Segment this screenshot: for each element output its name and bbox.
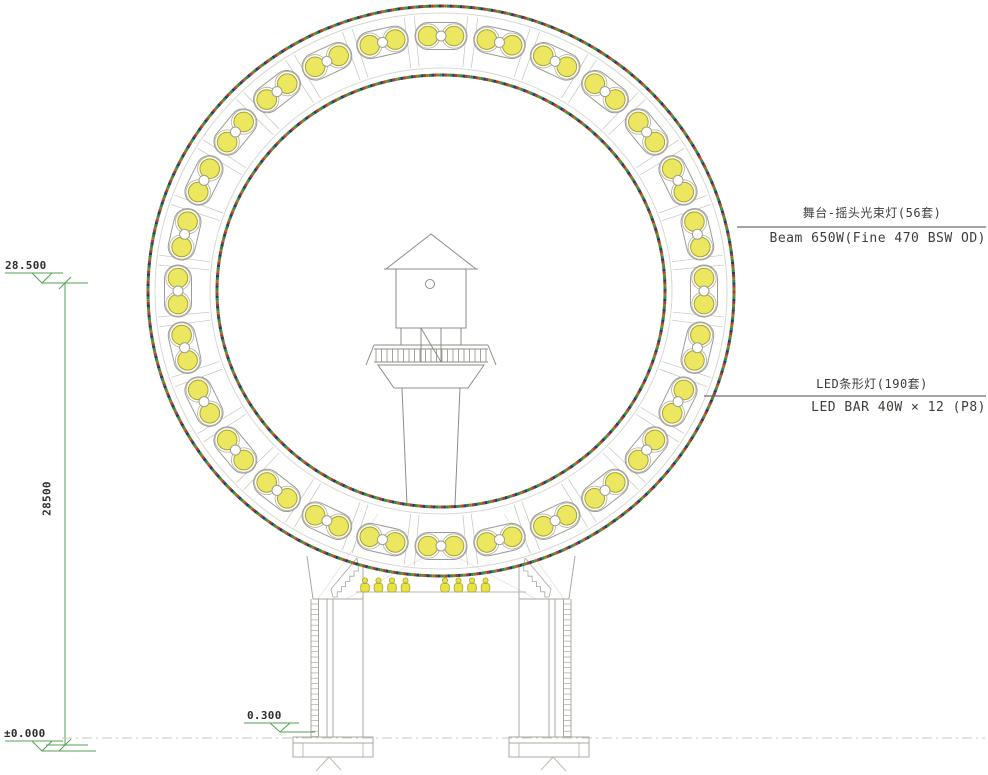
beam-light-label-en: Beam 650W(Fine 470 BSW OD) <box>758 231 986 246</box>
beam-light-capsule <box>620 421 674 478</box>
beam-light-capsule <box>248 65 306 118</box>
beam-light-capsule <box>165 265 192 317</box>
beam-light-capsule <box>354 521 411 559</box>
tower-cabin <box>396 269 466 328</box>
beam-light-capsule <box>471 521 528 559</box>
stage-mini-light <box>481 578 490 592</box>
overall-height-value: 28500 <box>41 476 54 522</box>
beam-light-capsule <box>576 464 634 517</box>
led-bar-label-en: LED BAR 40W × 12 (P8) <box>758 400 986 415</box>
beam-light-label-zh: 舞台-摇头光束灯(56套) <box>758 204 986 221</box>
beam-light-capsule <box>691 265 718 317</box>
beam-light-capsule <box>180 372 227 431</box>
level-mark-ground <box>5 741 96 751</box>
beam-light-capsule <box>678 206 716 263</box>
beam-light-capsule <box>208 421 262 478</box>
led-bar-label-zh: LED条形灯(190套) <box>758 375 986 392</box>
stage-mini-light <box>441 578 450 592</box>
beam-light-capsule <box>415 533 467 560</box>
tower-roof <box>386 234 476 269</box>
beam-light-capsule <box>471 24 528 62</box>
level-value-top: 28.500 <box>5 259 47 272</box>
beam-light-capsule <box>678 319 716 376</box>
beam-light-capsule <box>180 151 227 210</box>
stage-mini-light <box>468 578 477 592</box>
elevation-drawing-canvas: 舞台-摇头光束灯(56套) Beam 650W(Fine 470 BSW OD)… <box>0 0 988 775</box>
level-mark-top <box>5 273 88 283</box>
stage-mini-light <box>401 578 410 592</box>
annotation-leaders <box>704 227 986 396</box>
level-value-ground: ±0.000 <box>4 727 46 740</box>
beam-light-capsule <box>166 206 204 263</box>
beam-light-capsule <box>576 65 634 118</box>
stage-mini-light <box>361 578 370 592</box>
stage-mini-light <box>454 578 463 592</box>
stage-mini-light <box>388 578 397 592</box>
beam-light-capsule <box>620 103 674 160</box>
beam-light-capsule <box>354 24 411 62</box>
level-mark-platform <box>244 723 315 732</box>
tower-balcony <box>366 345 496 365</box>
level-value-platform: 0.300 <box>247 709 282 722</box>
beam-light-capsule <box>654 151 701 210</box>
lighthouse-tower <box>366 234 496 505</box>
beam-light-capsule <box>654 372 701 431</box>
beam-light-capsule <box>208 103 262 160</box>
beam-light-capsule <box>248 464 306 517</box>
beam-light-capsule <box>166 319 204 376</box>
beam-light-capsule <box>415 23 467 50</box>
